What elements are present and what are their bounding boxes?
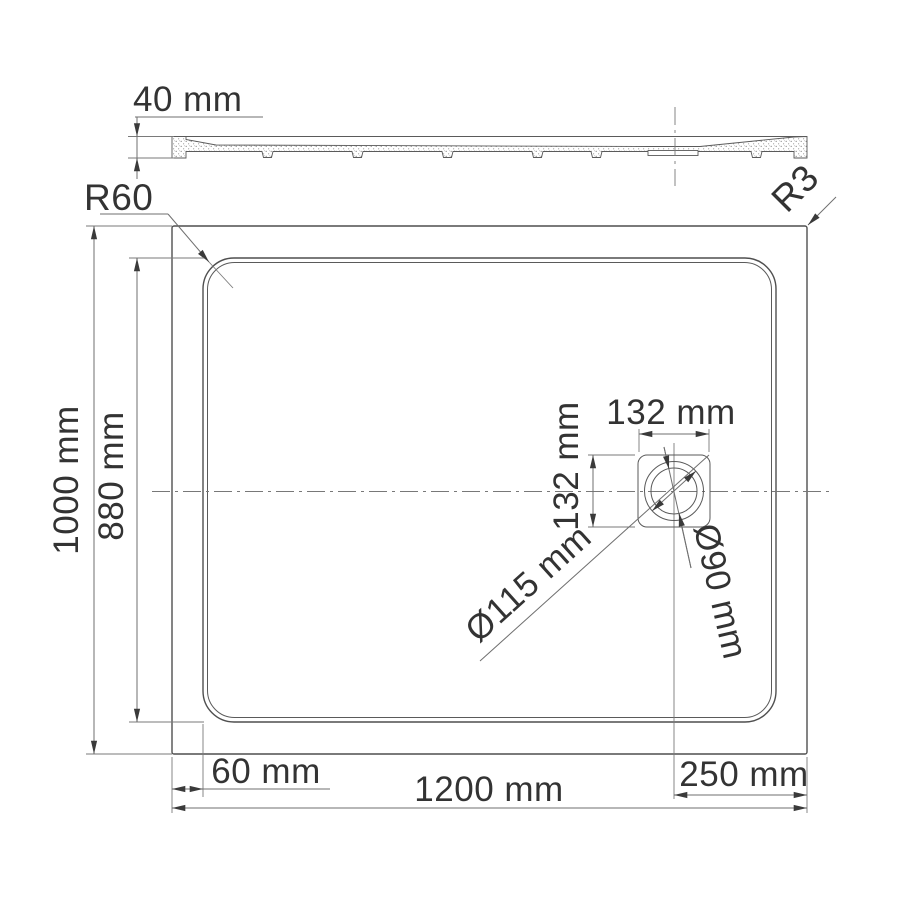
dim-1200mm-label: 1200 mm — [414, 770, 563, 809]
dim-880mm: 880 mm — [92, 258, 204, 722]
dim-inner-diameter: Ø90 mm — [664, 447, 755, 663]
dim-132mm-vertical-label: 132 mm — [547, 401, 586, 530]
dim-60mm-label: 60 mm — [211, 752, 320, 791]
r60-label: R60 — [84, 177, 153, 218]
drain-assembly — [638, 443, 710, 799]
dim-880mm-label: 880 mm — [92, 411, 131, 540]
dim-inner-diameter-label: Ø90 mm — [686, 520, 755, 662]
dim-132mm-horizontal: 132 mm — [606, 393, 735, 452]
tray-outer-outline — [172, 226, 807, 754]
r3-label: R3 — [764, 157, 827, 220]
radius-callout-r60: R60 — [84, 177, 233, 288]
basin-inner-edge — [208, 263, 772, 718]
dim-250mm-label: 250 mm — [679, 755, 808, 794]
dim-40mm: 40 mm — [128, 80, 263, 179]
technical-drawing-page: 40 mm R60 R3 — [0, 0, 900, 900]
profile-view: 40 mm — [128, 80, 807, 186]
profile-drain-recess — [648, 151, 698, 156]
dim-1000mm-label: 1000 mm — [47, 405, 86, 554]
dim-250mm: 250 mm — [674, 755, 809, 795]
dim-60mm: 60 mm — [172, 724, 330, 813]
radius-callout-r3: R3 — [764, 157, 836, 225]
dim-132mm-horizontal-label: 132 mm — [606, 393, 735, 432]
profile-section-material — [172, 137, 807, 159]
dim-outer-diameter-label: Ø115 mm — [458, 517, 599, 649]
dim-40mm-label: 40 mm — [133, 80, 242, 119]
plan-view: R60 R3 1000 mm 880 mm — [47, 157, 836, 813]
shower-tray-drawing: 40 mm R60 R3 — [0, 0, 900, 900]
